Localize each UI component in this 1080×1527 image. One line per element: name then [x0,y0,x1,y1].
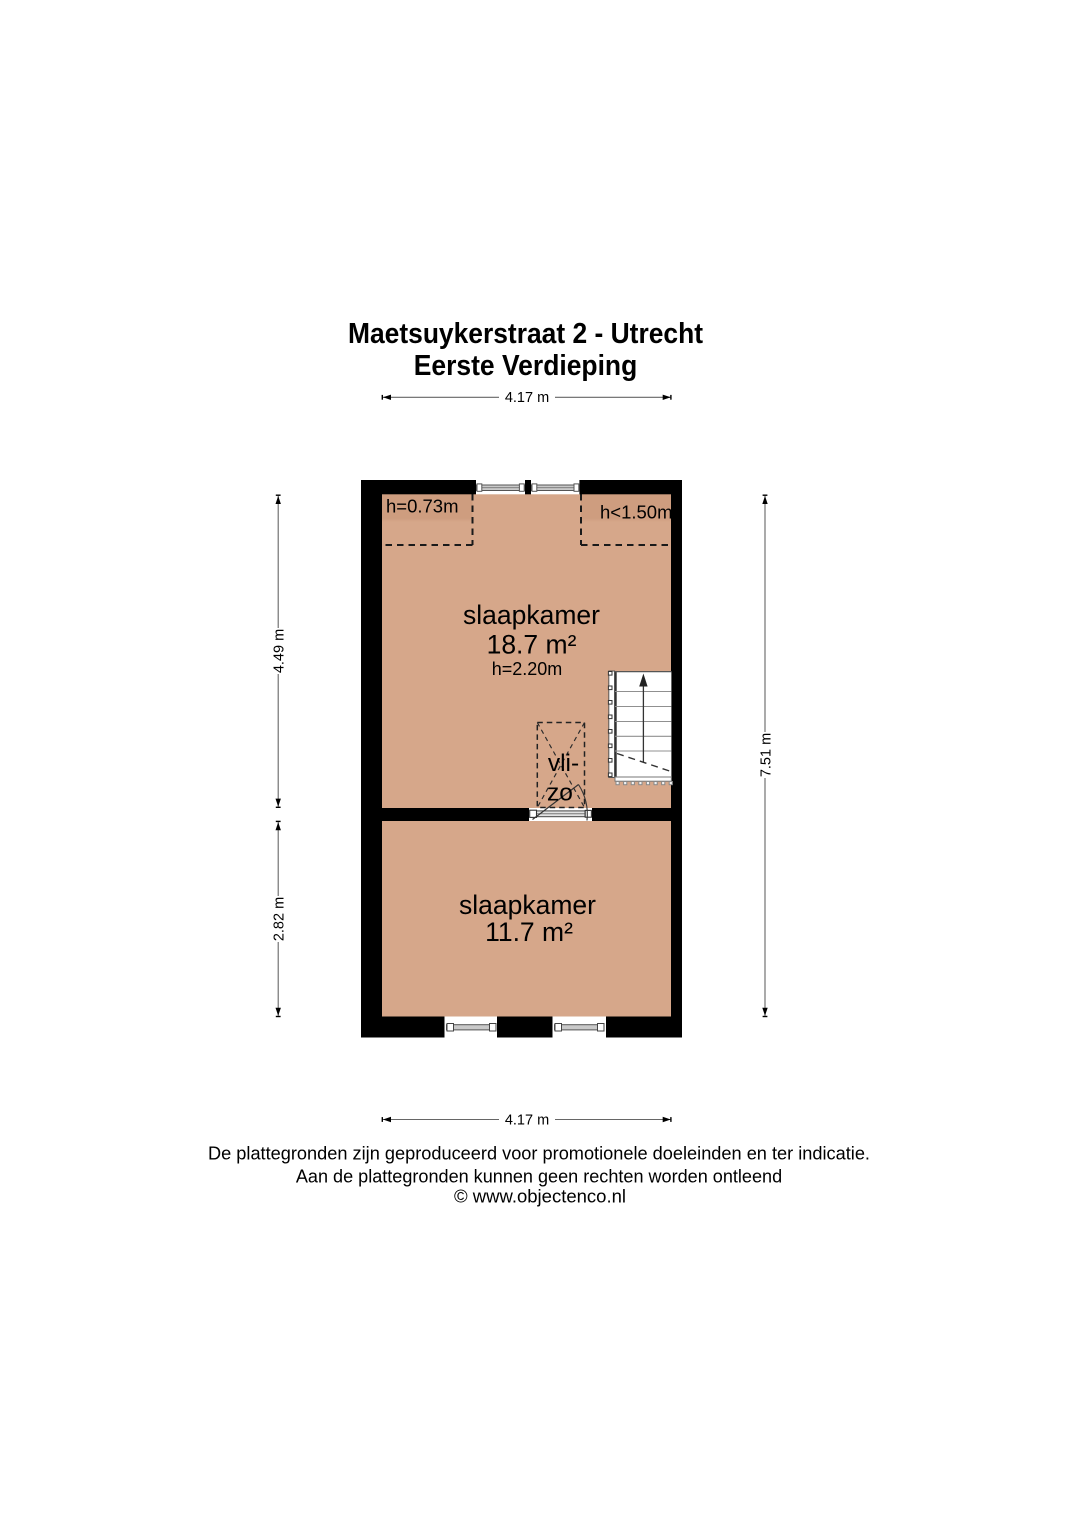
svg-text:Maetsuykerstraat 2 - Utrecht: Maetsuykerstraat 2 - Utrecht [348,318,703,350]
svg-text:4.17 m: 4.17 m [505,1113,549,1129]
svg-text:De plattegronden zijn geproduc: De plattegronden zijn geproduceerd voor … [208,1143,870,1164]
svg-text:h=0.73m: h=0.73m [386,496,459,517]
svg-text:Aan de plattegronden kunnen ge: Aan de plattegronden kunnen geen rechten… [296,1166,782,1187]
svg-text:© www.objectenco.nl: © www.objectenco.nl [454,1185,626,1206]
svg-text:zo: zo [547,780,573,807]
svg-text:vli-: vli- [548,750,579,777]
svg-text:11.7 m²: 11.7 m² [485,917,573,947]
svg-text:h=2.20m: h=2.20m [492,659,563,679]
svg-text:2.82 m: 2.82 m [272,897,288,941]
svg-text:slaapkamer: slaapkamer [459,890,596,920]
svg-text:7.51 m: 7.51 m [759,733,775,777]
svg-text:4.17 m: 4.17 m [505,390,549,406]
svg-text:slaapkamer: slaapkamer [463,600,600,630]
svg-text:18.7 m²: 18.7 m² [487,629,577,659]
svg-text:h<1.50m: h<1.50m [600,502,673,523]
svg-text:Eerste Verdieping: Eerste Verdieping [414,350,638,382]
svg-text:4.49 m: 4.49 m [272,629,288,673]
